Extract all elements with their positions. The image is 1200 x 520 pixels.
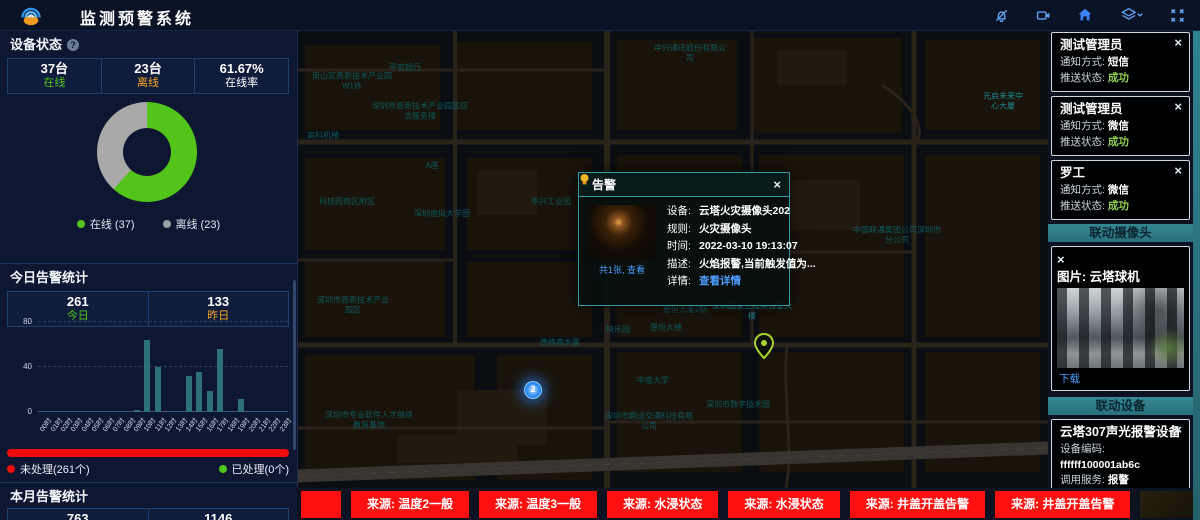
device-status-donut-chart [97, 102, 197, 202]
stat-cell: 1146 [149, 509, 289, 520]
camera-card-title: 图片: 云塔球机 [1057, 269, 1184, 286]
card-close-icon[interactable]: × [1174, 36, 1182, 49]
card-row: 推送状态: 成功 [1060, 71, 1181, 87]
alert-image-count-link[interactable]: 共1张, 查看 [588, 263, 656, 276]
stat-label: 在线率 [195, 77, 288, 90]
alert-popup-header: 告警 × [579, 173, 789, 197]
stat-value: 61.67% [195, 61, 288, 77]
legend-item: 离线 (23) [163, 216, 221, 232]
popup-row-label: 时间: [667, 238, 699, 256]
notification-card: ×罗工通知方式: 微信推送状态: 成功 [1051, 160, 1190, 220]
city-map[interactable]: 中兴通讯股份有限公司平安银行南山区高新技术产业园W1栋深圳市高新技术产业园区综合… [297, 30, 1048, 488]
bell-off-icon[interactable] [992, 6, 1010, 24]
ticker-alert-chip[interactable]: 来源: 温度3一般 [479, 491, 597, 518]
stat-cell: 763 [8, 509, 149, 520]
card-row-value: 成功 [1108, 200, 1129, 212]
ticker-alert-chip[interactable]: 来源: 井盖开盖告警 [850, 491, 985, 518]
bar [155, 367, 161, 412]
popup-row-value: 火灾摄像头 [699, 221, 752, 239]
card-row: 设备编码: ffffff100001ab6c [1060, 442, 1181, 473]
card-row-label: 推送状态: [1060, 200, 1108, 212]
device-card: ×云塔307声光报警设备设备编码: ffffff100001ab6c调用服务: … [1051, 419, 1190, 488]
alert-detail-rows: 设备:云塔火灾摄像头202规则:火灾摄像头时间:2022-03-10 19:13… [667, 203, 785, 291]
card-row-label: 设备编码: [1060, 443, 1105, 455]
notification-card-title: 罗工 [1060, 165, 1181, 182]
bar [217, 349, 223, 412]
card-row: 通知方式: 微信 [1060, 183, 1181, 199]
popup-row: 详情:查看详情 [667, 273, 785, 291]
linked-camera-header[interactable]: 联动摄像头 [1048, 224, 1193, 242]
popup-row: 时间:2022-03-10 19:13:07 [667, 238, 785, 256]
popup-row-value: 云塔火灾摄像头202 [699, 203, 790, 221]
home-icon[interactable] [1076, 6, 1094, 24]
stat-value: 1146 [149, 511, 289, 520]
stat-value: 261 [8, 294, 148, 310]
ticker-alert-chip[interactable]: 来源: 水浸状态 [607, 491, 718, 518]
legend-dot-icon [77, 220, 85, 228]
layers-icon[interactable] [1118, 6, 1144, 24]
bar [186, 376, 192, 412]
map-cluster-marker[interactable]: 2 [524, 381, 542, 399]
bar [134, 410, 140, 412]
section-divider [0, 482, 297, 483]
popup-row-label: 规则: [667, 221, 699, 239]
unhandled-label: 未处理(261个) [20, 461, 90, 477]
card-row-value: 微信 [1108, 184, 1129, 196]
download-link[interactable]: 下载 [1057, 370, 1184, 386]
stat-cell: 37台在线 [8, 59, 102, 93]
y-tick-label: 0 [12, 407, 32, 416]
right-scrollbar[interactable] [1193, 30, 1200, 520]
ticker-alert-chip[interactable] [301, 491, 341, 518]
page-title: 监测预警系统 [80, 5, 194, 29]
bar [144, 340, 150, 412]
card-row-label: 通知方式: [1060, 184, 1108, 196]
month-alarms-stats: 7631146 [7, 508, 289, 520]
fullscreen-icon[interactable] [1168, 6, 1186, 24]
stat-cell: 23台离线 [102, 59, 196, 93]
notification-card: ×测试管理员通知方式: 微信推送状态: 成功 [1051, 96, 1190, 156]
bar [196, 372, 202, 413]
popup-close-icon[interactable]: × [773, 178, 781, 191]
linked-camera-card: × 图片: 云塔球机 下载 [1051, 246, 1190, 391]
device-status-title-text: 设备状态 [10, 37, 62, 52]
linked-devices-header[interactable]: 联动设备 [1048, 397, 1193, 415]
section-divider [0, 263, 297, 264]
gridline [38, 411, 288, 412]
card-row-value: 成功 [1108, 136, 1129, 148]
today-alarms-title: 今日告警统计 [0, 267, 297, 289]
y-tick-label: 40 [12, 362, 32, 371]
notification-card: ×测试管理员通知方式: 短信推送状态: 成功 [1051, 32, 1190, 92]
stat-label: 离线 [102, 77, 195, 90]
gridline [38, 366, 288, 367]
linked-device-list: ×云塔307声光报警设备设备编码: ffffff100001ab6c调用服务: … [1048, 419, 1193, 488]
card-close-icon[interactable]: × [1174, 100, 1182, 113]
legend-label: 离线 (23) [176, 216, 221, 232]
device-status-stats: 37台在线23台离线61.67%在线率 [7, 58, 289, 94]
card-row-value: 微信 [1108, 120, 1129, 132]
y-tick-label: 80 [12, 317, 32, 326]
stat-value: 23台 [102, 61, 195, 77]
notification-card-title: 测试管理员 [1060, 101, 1181, 118]
card-row-label: 调用服务: [1060, 474, 1108, 486]
popup-row: 描述:火焰报警,当前触发值为... [667, 256, 785, 274]
card-row-label: 通知方式: [1060, 56, 1108, 68]
camera-snapshot-image[interactable] [1057, 288, 1184, 368]
month-alarms-title: 本月告警统计 [0, 486, 297, 508]
notification-card-title: 测试管理员 [1060, 37, 1181, 54]
stat-label: 在线 [8, 77, 101, 90]
card-row: 通知方式: 微信 [1060, 119, 1181, 135]
ticker-image-thumbnail[interactable] [1140, 491, 1193, 518]
video-camera-icon[interactable] [1034, 6, 1052, 24]
unhandled-progress-bar [7, 449, 289, 457]
popup-row-label: 设备: [667, 203, 699, 221]
alert-snapshot-image[interactable] [588, 205, 656, 259]
handled-label: 已处理(0个) [232, 461, 289, 477]
today-bar-chart-plot: 0408000时01时02时03时04时05时06时07时08时09时10时11… [38, 322, 288, 412]
notification-list: ×测试管理员通知方式: 短信推送状态: 成功×测试管理员通知方式: 微信推送状态… [1048, 32, 1193, 220]
card-row: 通知方式: 短信 [1060, 55, 1181, 71]
card-row-label: 推送状态: [1060, 136, 1108, 148]
bar [207, 391, 213, 412]
handled-legend-item: 已处理(0个) [219, 461, 289, 477]
card-close-icon[interactable]: × [1057, 252, 1065, 267]
card-row-value: 成功 [1108, 72, 1129, 84]
stat-value: 37台 [8, 61, 101, 77]
card-row: 调用服务: 报警 [1060, 473, 1181, 488]
ticker-alert-chip[interactable]: 来源: 水浸状态 [728, 491, 839, 518]
alert-popup-title: 告警 [592, 176, 773, 193]
legend-dot-icon [163, 220, 171, 228]
unhandled-legend-item: 未处理(261个) [7, 461, 90, 477]
card-row: 推送状态: 成功 [1060, 199, 1181, 215]
alert-ticker-bar: 来源: 温度2一般来源: 温度3一般来源: 水浸状态来源: 水浸状态来源: 井盖… [297, 488, 1193, 520]
legend-label: 在线 (37) [90, 216, 135, 232]
device-card-title: 云塔307声光报警设备 [1060, 424, 1181, 441]
right-linkage-panel: ×测试管理员通知方式: 短信推送状态: 成功×测试管理员通知方式: 微信推送状态… [1048, 30, 1193, 488]
help-icon[interactable]: ? [67, 39, 79, 51]
alarm-lamp-icon [579, 173, 590, 186]
card-close-icon[interactable]: × [1174, 164, 1182, 177]
card-row-value: ffffff100001ab6c [1060, 459, 1140, 471]
stat-value: 133 [149, 294, 289, 310]
gridline [38, 321, 288, 322]
donut-hole [123, 128, 171, 176]
app-logo-icon [18, 2, 44, 28]
popup-detail-link[interactable]: 查看详情 [699, 273, 741, 291]
ticker-alert-chip[interactable]: 来源: 温度2一般 [351, 491, 469, 518]
popup-row-value: 2022-03-10 19:13:07 [699, 238, 798, 256]
stat-value: 763 [8, 511, 148, 520]
device-status-title: 设备状态? [0, 34, 297, 56]
left-stats-panel: 设备状态? 37台在线23台离线61.67%在线率 在线 (37)离线 (23)… [0, 30, 298, 520]
card-row-value: 短信 [1108, 56, 1129, 68]
alert-popup: 告警 × 共1张, 查看 设备:云塔火灾摄像头202规则:火灾摄像头时间:202… [578, 172, 790, 306]
ticker-alert-chip[interactable]: 来源: 井盖开盖告警 [995, 491, 1130, 518]
card-close-icon[interactable]: × [1174, 423, 1182, 436]
popup-row-label: 描述: [667, 256, 699, 274]
stat-cell: 61.67%在线率 [195, 59, 288, 93]
card-row: 推送状态: 成功 [1060, 135, 1181, 151]
green-dot-icon [219, 465, 227, 473]
top-header: 监测预警系统 [0, 0, 1200, 31]
donut-legend: 在线 (37)离线 (23) [0, 216, 297, 232]
card-row-label: 推送状态: [1060, 72, 1108, 84]
legend-item: 在线 (37) [77, 216, 135, 232]
bar [238, 399, 244, 413]
popup-row-label: 详情: [667, 273, 699, 291]
red-dot-icon [7, 465, 15, 473]
header-toolbar [992, 0, 1186, 30]
popup-row: 规则:火灾摄像头 [667, 221, 785, 239]
processing-legend: 未处理(261个) 已处理(0个) [7, 461, 289, 477]
popup-row: 设备:云塔火灾摄像头202 [667, 203, 785, 221]
popup-row-value: 火焰报警,当前触发值为... [699, 256, 816, 274]
card-row-label: 通知方式: [1060, 120, 1108, 132]
left-panel-scrollbar[interactable] [293, 280, 296, 450]
card-row-value: 报警 [1108, 474, 1129, 486]
